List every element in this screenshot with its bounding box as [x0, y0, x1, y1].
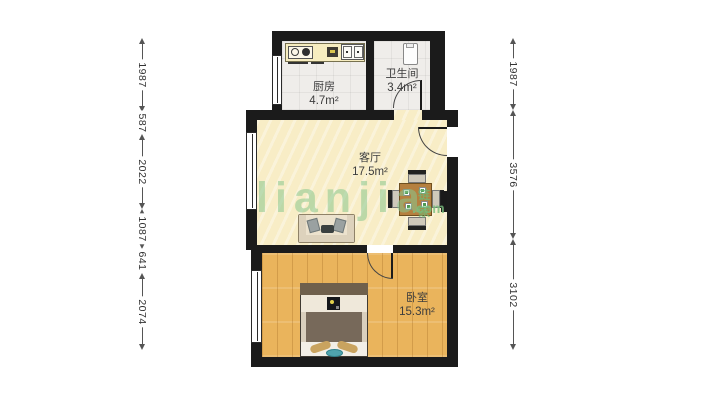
wall-bottom — [251, 357, 458, 367]
plate-food — [421, 189, 424, 192]
sink-drain-left — [346, 51, 348, 53]
bathroom-name: 卫生间 — [372, 67, 432, 81]
bedroom-label: 卧室 15.3m² — [375, 291, 459, 320]
bed-rail-left — [301, 312, 306, 345]
wall-living-right-upper — [447, 110, 458, 127]
living-room-window — [246, 132, 257, 210]
kitchen-label: 厨房 4.7m² — [282, 80, 366, 109]
bedroom-area: 15.3m² — [375, 305, 459, 320]
burner-ring-icon — [291, 48, 299, 56]
wall-mid-band-left — [246, 110, 394, 120]
dim-left-5: 641 — [135, 249, 149, 273]
dim-value: 3102 — [507, 279, 519, 310]
arrow-down-icon — [139, 344, 145, 350]
wall-bedroom-left-upper — [251, 253, 262, 270]
dining-table — [399, 183, 432, 216]
wall-top — [272, 31, 445, 41]
dim-left-1: 1987 — [135, 38, 149, 112]
sink-drain-right — [357, 51, 359, 53]
dining-chair-right-seat — [432, 190, 440, 208]
dim-left-6: 2074 — [135, 273, 149, 350]
bathroom-area: 3.4m² — [372, 81, 432, 96]
bed-cushion-dot-small — [336, 306, 339, 309]
dining-chair-bottom-seat — [408, 217, 426, 226]
dim-value: 1987 — [136, 59, 148, 90]
control-panel-light — [330, 50, 335, 53]
bed-rail-right — [362, 312, 367, 345]
kitchen-name: 厨房 — [282, 80, 366, 94]
dim-left-4: 1087 — [135, 209, 149, 249]
sofa-cushion-dark — [321, 225, 334, 233]
wall-living-left-lower — [246, 210, 257, 250]
wall-living-left-upper — [246, 110, 257, 132]
living-room-label: 客厅 17.5m² — [300, 151, 440, 180]
dim-value: 2074 — [136, 296, 148, 327]
dim-value: 2022 — [136, 156, 148, 187]
wall-living-bedroom-divider-left — [251, 245, 367, 253]
dim-value: 641 — [136, 248, 148, 273]
kitchen-area: 4.7m² — [282, 94, 366, 109]
kitchen-window — [272, 55, 282, 105]
sofa-arm-left — [299, 215, 306, 242]
wall-living-right-lower — [447, 157, 458, 250]
cabinet-handle — [311, 62, 324, 64]
plate-food — [405, 191, 408, 194]
dim-value: 587 — [136, 110, 148, 135]
bedroom-name: 卧室 — [375, 291, 459, 305]
sofa-back — [299, 235, 354, 242]
dim-right-2: 3576 — [506, 110, 520, 239]
dim-value: 1087 — [136, 213, 148, 244]
bed-cushion-dot — [330, 300, 334, 304]
dim-right-1: 1987 — [506, 38, 520, 110]
burner-dot-icon — [302, 48, 310, 56]
dim-value: 1987 — [507, 58, 519, 89]
bed-stool-teal — [326, 349, 343, 357]
plate-food — [407, 205, 410, 208]
bathroom-door-opening — [394, 110, 422, 120]
dining-chair-bottom — [408, 226, 426, 230]
plate-food — [423, 203, 426, 206]
wall-bath-right — [430, 31, 445, 110]
living-room-area: 17.5m² — [300, 165, 440, 180]
bedroom-window — [251, 270, 262, 343]
dim-value: 3576 — [507, 159, 519, 190]
sofa-arm-right — [347, 215, 354, 242]
bed-headboard — [300, 283, 368, 295]
water-heater-top — [406, 43, 414, 48]
arrow-down-icon — [510, 344, 516, 350]
dim-right-3: 3102 — [506, 239, 520, 350]
cabinet-handle — [288, 62, 308, 64]
dim-left-2: 587 — [135, 112, 149, 134]
floorplan-canvas: 厨房 4.7m² 卫生间 3.4m² 客厅 17.5m² 卧室 15.3m² l… — [0, 0, 710, 400]
wall-kitchen-left-upper — [272, 41, 282, 55]
bathroom-label: 卫生间 3.4m² — [372, 67, 432, 96]
dim-left-3: 2022 — [135, 134, 149, 209]
living-room-name: 客厅 — [300, 151, 440, 165]
wall-living-bedroom-divider-right — [393, 245, 458, 253]
